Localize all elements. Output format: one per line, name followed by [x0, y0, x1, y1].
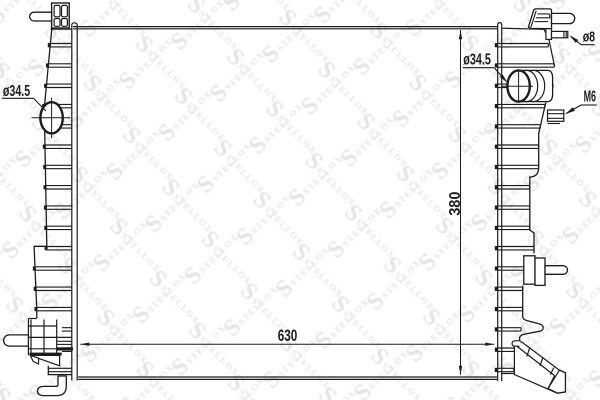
svg-text:ø34.5: ø34.5 [463, 51, 491, 68]
svg-text:ø8: ø8 [583, 28, 595, 45]
svg-text:630: 630 [278, 327, 298, 345]
svg-text:ø34.5: ø34.5 [3, 83, 30, 100]
svg-text:M6: M6 [584, 89, 597, 106]
svg-text:380: 380 [447, 191, 464, 215]
